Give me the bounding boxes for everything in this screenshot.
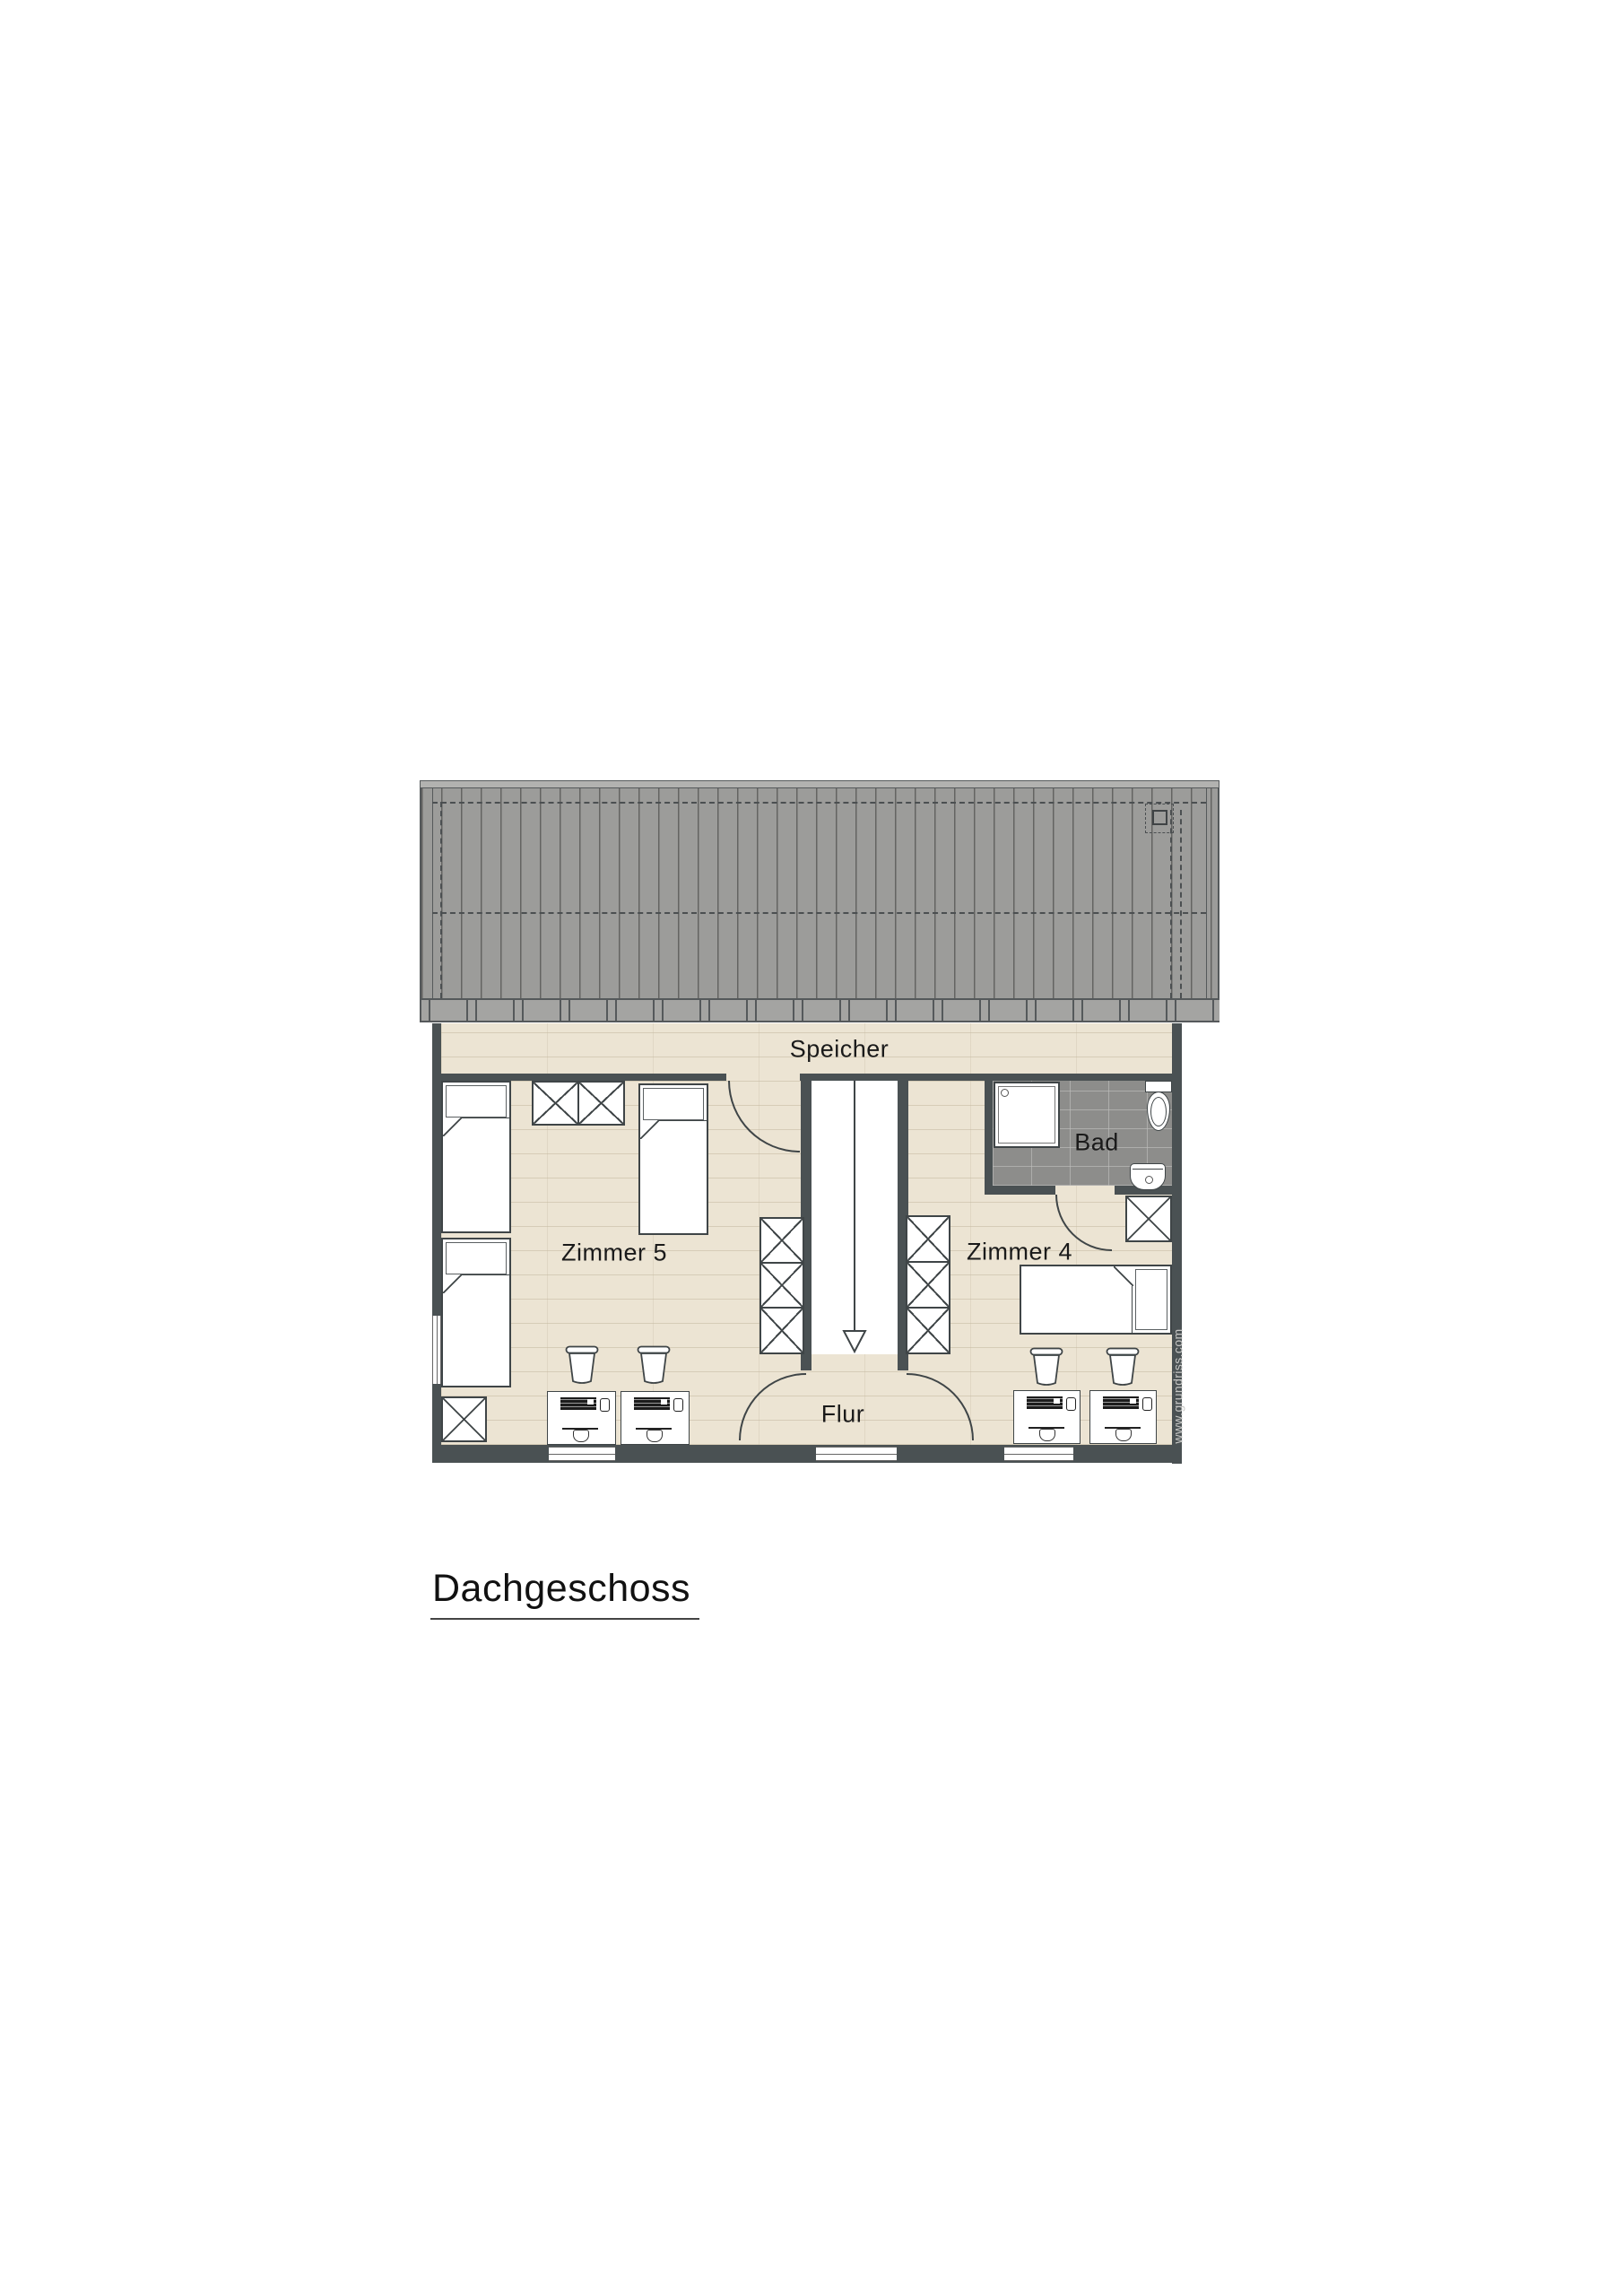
keyboard-icon bbox=[560, 1397, 596, 1410]
bed-blanket-line bbox=[461, 1274, 509, 1275]
roof-dashed-line-upper bbox=[432, 802, 1206, 804]
keyboard-icon bbox=[1103, 1396, 1139, 1409]
desk-icon-zimmer4-a bbox=[1013, 1390, 1081, 1444]
window-left-wall bbox=[432, 1316, 441, 1384]
stair-arrow-head-icon bbox=[841, 1329, 868, 1354]
wall-bath-bottom-left-segment bbox=[985, 1186, 1055, 1195]
bed-pillow bbox=[446, 1242, 507, 1274]
chair-icon bbox=[1106, 1347, 1140, 1387]
mouse-icon bbox=[1115, 1429, 1132, 1441]
chair-icon bbox=[637, 1345, 671, 1385]
bed-icon-zimmer5-b bbox=[441, 1238, 511, 1387]
floorplan-drawing: Speicher Zimmer 5 Zimmer 4 Bad Flur www.… bbox=[420, 780, 1219, 1592]
keyboard-icon bbox=[634, 1397, 670, 1410]
room-label-flur: Flur bbox=[821, 1401, 865, 1429]
wall-bath-left bbox=[985, 1081, 993, 1195]
shower-icon bbox=[994, 1082, 1060, 1148]
wardrobe-icon bbox=[759, 1307, 804, 1354]
chair-icon bbox=[565, 1345, 599, 1385]
cabinet-icon-zimmer5 bbox=[441, 1396, 487, 1442]
cabinet-icon-bad bbox=[1125, 1196, 1172, 1242]
wardrobe-icon bbox=[906, 1215, 950, 1263]
phone-icon bbox=[1142, 1397, 1152, 1411]
page-title: Dachgeschoss bbox=[430, 1567, 699, 1620]
watermark: www.grundriss.com bbox=[1171, 1318, 1185, 1455]
wall-speicher-left-segment bbox=[441, 1074, 726, 1081]
wardrobe-icon bbox=[577, 1081, 625, 1126]
chair-icon bbox=[1029, 1347, 1063, 1387]
roof-dashed-line-right-b bbox=[1180, 810, 1182, 998]
bed-fold bbox=[443, 1118, 462, 1136]
wardrobe-icon bbox=[759, 1262, 804, 1309]
wall-speicher-right-segment bbox=[800, 1074, 1172, 1081]
bed-fold bbox=[443, 1274, 462, 1293]
wardrobe-icon bbox=[906, 1307, 950, 1354]
phone-icon bbox=[1066, 1397, 1076, 1411]
wardrobe-icon bbox=[532, 1081, 579, 1126]
keyboard-icon bbox=[1027, 1396, 1063, 1409]
sink-icon bbox=[1130, 1163, 1166, 1190]
window-flur bbox=[816, 1447, 897, 1461]
roof-dashed-line-middle bbox=[432, 912, 1206, 914]
roof-gable-line-left bbox=[432, 788, 433, 998]
bed-pillow bbox=[643, 1088, 704, 1120]
roof-ridge bbox=[420, 780, 1219, 788]
bed-icon-zimmer4 bbox=[1020, 1265, 1172, 1335]
room-label-zimmer4: Zimmer 4 bbox=[967, 1239, 1072, 1266]
bed-fold bbox=[640, 1120, 659, 1139]
mouse-icon bbox=[647, 1430, 663, 1442]
bed-icon-zimmer5-c bbox=[638, 1083, 708, 1235]
bed-pillow bbox=[446, 1085, 507, 1118]
bed-blanket-line bbox=[1132, 1284, 1133, 1333]
desk-icon-zimmer4-b bbox=[1089, 1390, 1157, 1444]
roof-eave bbox=[420, 998, 1219, 1022]
bed-fold bbox=[1114, 1266, 1133, 1286]
bed-blanket-line bbox=[658, 1120, 707, 1121]
roof-dashed-line-left bbox=[440, 802, 442, 998]
mouse-icon bbox=[1039, 1429, 1055, 1441]
wall-outer-left bbox=[432, 1023, 441, 1463]
mouse-icon bbox=[573, 1430, 589, 1442]
room-label-zimmer5: Zimmer 5 bbox=[561, 1239, 667, 1267]
stair-arrow-line bbox=[854, 1081, 855, 1335]
room-label-bad: Bad bbox=[1074, 1129, 1119, 1157]
wardrobe-icon bbox=[759, 1217, 804, 1264]
phone-icon bbox=[673, 1398, 683, 1412]
roof-gable-line-right bbox=[1206, 788, 1207, 998]
phone-icon bbox=[600, 1398, 610, 1412]
window-zimmer5 bbox=[549, 1447, 615, 1461]
room-label-speicher: Speicher bbox=[790, 1036, 890, 1064]
desk-icon-zimmer5-a bbox=[547, 1391, 616, 1445]
window-zimmer4 bbox=[1004, 1447, 1073, 1461]
bed-icon-zimmer5-a bbox=[441, 1081, 511, 1233]
bed-pillow bbox=[1135, 1269, 1167, 1330]
floorplan-page: Speicher Zimmer 5 Zimmer 4 Bad Flur www.… bbox=[0, 0, 1623, 2296]
wardrobe-icon bbox=[906, 1261, 950, 1309]
roof-dashed-line-right-a bbox=[1170, 810, 1172, 998]
bed-blanket-line bbox=[461, 1118, 509, 1118]
desk-icon-zimmer5-b bbox=[621, 1391, 690, 1445]
chimney-icon bbox=[1152, 810, 1167, 825]
roof-body bbox=[420, 788, 1219, 998]
